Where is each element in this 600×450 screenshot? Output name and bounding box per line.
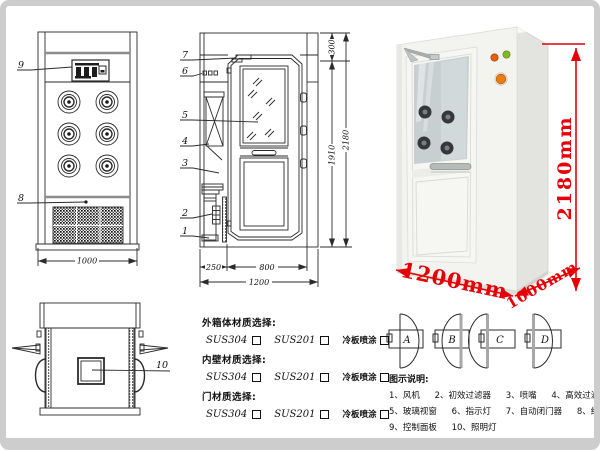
side-handles bbox=[36, 359, 145, 392]
front-width-dimension: 1000 bbox=[38, 248, 137, 266]
material-checkbox[interactable] bbox=[320, 410, 329, 419]
svg-text:C: C bbox=[496, 335, 504, 346]
fan-filter-column bbox=[202, 92, 227, 242]
legend-item: 5、玻璃视窗 bbox=[389, 407, 437, 417]
material-group-label: 门材质选择: bbox=[202, 389, 389, 403]
option-label: SUS201 bbox=[274, 372, 315, 383]
door-handle-slot bbox=[252, 151, 276, 156]
legend-item: 2、初效过滤器 bbox=[435, 391, 491, 401]
nozzle-icon bbox=[58, 123, 80, 145]
callout-5: 5 bbox=[180, 110, 258, 122]
legend-item: 3、喷嘴 bbox=[506, 391, 537, 401]
option-label: 冷板喷涂 bbox=[342, 371, 376, 383]
svg-text:1910: 1910 bbox=[328, 145, 337, 165]
svg-text:1000: 1000 bbox=[77, 257, 97, 266]
width-dimensions: 250 800 1200 bbox=[200, 244, 318, 287]
door-type-b-icon: B bbox=[433, 314, 469, 368]
nozzle-icon bbox=[96, 123, 118, 145]
svg-text:800: 800 bbox=[259, 263, 274, 272]
door-elevation-view: 7 6 5 4 3 2 1 300 1910 2180 bbox=[180, 33, 352, 287]
nozzle-icon bbox=[96, 91, 118, 113]
legend-item: 7、自动闭门器 bbox=[506, 407, 562, 417]
svg-text:6: 6 bbox=[182, 66, 188, 77]
svg-text:5: 5 bbox=[182, 110, 188, 121]
option-label: SUS201 bbox=[274, 409, 315, 420]
material-checkbox[interactable] bbox=[252, 373, 261, 382]
option-label: SUS304 bbox=[206, 335, 247, 346]
door-swing-options: A B C D bbox=[387, 314, 561, 368]
door-hinges bbox=[301, 93, 307, 168]
door-type-d-icon: D bbox=[525, 314, 561, 368]
callout-3: 3 bbox=[180, 158, 219, 173]
legend-item: 1、风机 bbox=[389, 391, 420, 401]
svg-text:8: 8 bbox=[18, 193, 24, 204]
option-label: SUS201 bbox=[274, 335, 315, 346]
legend-item: 8、红外线感应器 bbox=[577, 407, 600, 417]
air-return-grille bbox=[53, 207, 123, 243]
svg-text:3: 3 bbox=[182, 158, 188, 169]
svg-text:D: D bbox=[540, 335, 549, 346]
material-selection-form: 外箱体材质选择: SUS304 SUS201 冷板喷涂 内壁材质选择: SUS3… bbox=[202, 315, 389, 420]
open-door-wings bbox=[12, 344, 168, 354]
legend-item: 9、控制面板 bbox=[389, 423, 437, 433]
callout-4: 4 bbox=[180, 136, 209, 147]
callout-6: 6 bbox=[180, 66, 202, 77]
door-handle bbox=[430, 164, 471, 170]
option-label: 冷板喷涂 bbox=[342, 334, 376, 346]
legend-title: 图示说明: bbox=[389, 372, 600, 385]
svg-text:9: 9 bbox=[18, 60, 24, 71]
svg-text:1200: 1200 bbox=[249, 278, 269, 287]
svg-text:250: 250 bbox=[205, 263, 221, 272]
svg-text:1: 1 bbox=[182, 226, 188, 237]
glass-hatch-marks bbox=[247, 78, 275, 140]
material-checkbox[interactable] bbox=[252, 336, 261, 345]
callout-9: 9 bbox=[17, 60, 72, 71]
emergency-button bbox=[496, 74, 506, 84]
svg-text:10: 10 bbox=[156, 360, 168, 371]
legend-item: 4、高效过滤器 bbox=[551, 391, 600, 401]
door-type-a-icon: A bbox=[387, 314, 423, 368]
svg-text:4: 4 bbox=[181, 136, 188, 147]
svg-text:2180: 2180 bbox=[342, 130, 351, 151]
material-checkbox[interactable] bbox=[320, 373, 329, 382]
material-group-label: 外箱体材质选择: bbox=[202, 315, 389, 329]
material-checkbox[interactable] bbox=[380, 336, 389, 345]
photo-height-label: 2180mm bbox=[554, 93, 576, 243]
plan-view: 10 bbox=[12, 303, 170, 415]
nozzle-grid bbox=[58, 91, 118, 177]
front-elevation-view: 9 8 1000 bbox=[17, 32, 139, 266]
air-shower-spec-sheet: 9 8 1000 bbox=[0, 0, 600, 450]
material-checkbox[interactable] bbox=[320, 336, 329, 345]
svg-text:300: 300 bbox=[328, 39, 337, 54]
door-type-c-icon: C bbox=[469, 314, 516, 368]
option-label: 冷板喷涂 bbox=[342, 408, 376, 420]
svg-text:7: 7 bbox=[182, 50, 189, 61]
svg-text:A: A bbox=[402, 335, 410, 346]
material-group-label: 内壁材质选择: bbox=[202, 352, 389, 366]
legend-item: 6、指示灯 bbox=[452, 407, 491, 417]
nozzle-icon bbox=[58, 91, 80, 113]
nozzle-icon bbox=[58, 155, 80, 177]
legend-item: 10、照明灯 bbox=[452, 423, 497, 433]
callout-8: 8 bbox=[17, 193, 88, 204]
option-label: SUS304 bbox=[206, 409, 247, 420]
green-indicator-lamp bbox=[503, 51, 510, 58]
option-label: SUS304 bbox=[206, 372, 247, 383]
control-panel bbox=[72, 60, 109, 81]
red-indicator-lamp bbox=[491, 54, 498, 61]
indicator-lights bbox=[203, 71, 218, 75]
product-photo bbox=[394, 27, 552, 299]
callout-1: 1 bbox=[180, 226, 209, 238]
glass-window bbox=[414, 56, 469, 164]
height-dimensions: 300 1910 2180 bbox=[320, 33, 352, 247]
nozzle-icon bbox=[96, 155, 118, 177]
glass-door bbox=[227, 55, 302, 240]
material-checkbox[interactable] bbox=[252, 410, 261, 419]
callout-7: 7 bbox=[180, 50, 236, 61]
callout-2: 2 bbox=[180, 208, 212, 219]
svg-text:B: B bbox=[447, 335, 455, 346]
svg-text:2: 2 bbox=[181, 208, 188, 219]
ceiling-light bbox=[78, 358, 104, 384]
legend: 图示说明: 1、风机 2、初效过滤器 3、喷嘴 4、高效过滤器 5、玻璃视窗 6… bbox=[389, 372, 600, 433]
